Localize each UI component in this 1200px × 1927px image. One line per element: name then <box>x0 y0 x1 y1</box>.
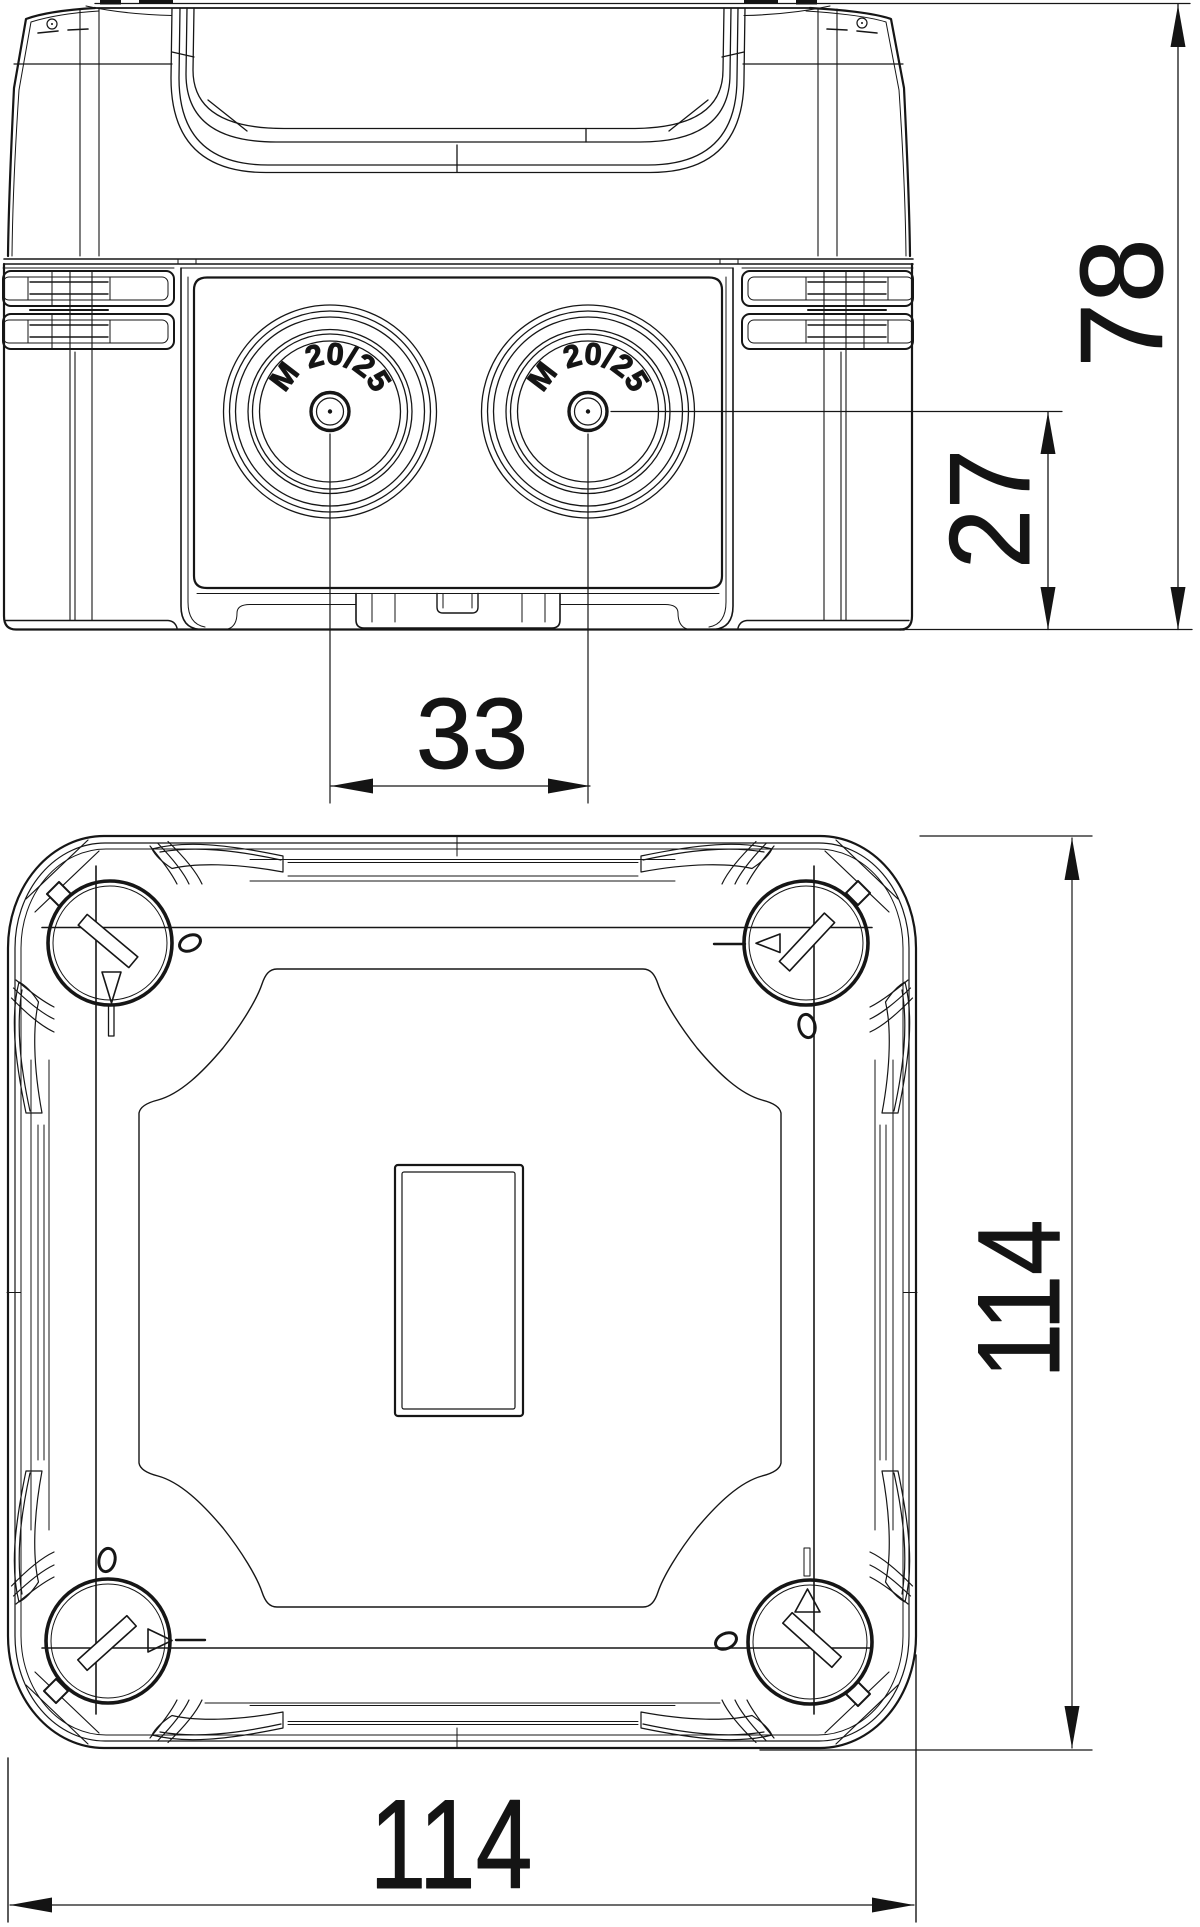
svg-text:33: 33 <box>416 678 528 790</box>
svg-text:114: 114 <box>953 1220 1084 1379</box>
svg-text:27: 27 <box>927 449 1054 569</box>
svg-text:114: 114 <box>370 1773 533 1915</box>
svg-text:78: 78 <box>1056 239 1187 368</box>
